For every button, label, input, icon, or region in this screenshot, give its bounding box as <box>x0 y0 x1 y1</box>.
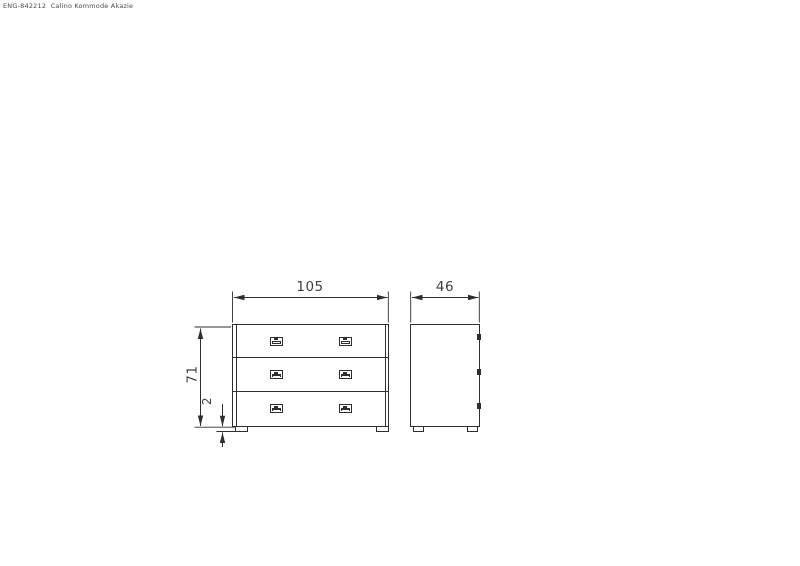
handle-slot <box>273 376 280 377</box>
drawer-handle-icon <box>270 370 283 379</box>
dimension-label-width: 105 <box>285 280 335 295</box>
handle-cup <box>341 341 350 344</box>
handle-cup <box>272 374 281 377</box>
handle-profile-icon <box>477 369 481 375</box>
drawer-handle-icon <box>270 337 283 346</box>
front-view-foot-left <box>235 426 248 432</box>
handle-profile-icon <box>477 334 481 340</box>
side-view <box>410 324 480 427</box>
drawer-2 <box>233 357 388 391</box>
handle-cup <box>341 374 350 377</box>
handle-slot <box>273 342 280 343</box>
dimension-label-depth: 46 <box>425 280 465 295</box>
dimension-label-foot-height: 2 <box>200 392 214 410</box>
handle-profile-icon <box>477 403 481 409</box>
drawer-handle-icon <box>339 337 352 346</box>
handle-slot <box>342 342 349 343</box>
handle-cup <box>341 408 350 411</box>
side-view-foot-right <box>467 426 478 432</box>
side-panel-line-right <box>385 325 386 426</box>
technical-drawing-canvas: ENG-842212 Calino Kommode Akazie 105 46 <box>0 0 800 566</box>
handle-slot <box>273 410 280 411</box>
handle-cup <box>272 408 281 411</box>
drawer-handle-icon <box>270 404 283 413</box>
drawer-3 <box>233 391 388 425</box>
side-view-foot-left <box>413 426 424 432</box>
side-panel-line-left <box>236 325 237 426</box>
drawer-1 <box>233 325 388 357</box>
drawer-handle-icon <box>339 404 352 413</box>
drawer-handle-icon <box>339 370 352 379</box>
handle-slot <box>342 376 349 377</box>
handle-cup <box>272 341 281 344</box>
dimension-lines-layer <box>0 0 800 566</box>
handle-slot <box>342 410 349 411</box>
front-view-foot-right <box>376 426 389 432</box>
dimension-label-height: 71 <box>186 362 201 388</box>
front-view <box>232 324 389 427</box>
